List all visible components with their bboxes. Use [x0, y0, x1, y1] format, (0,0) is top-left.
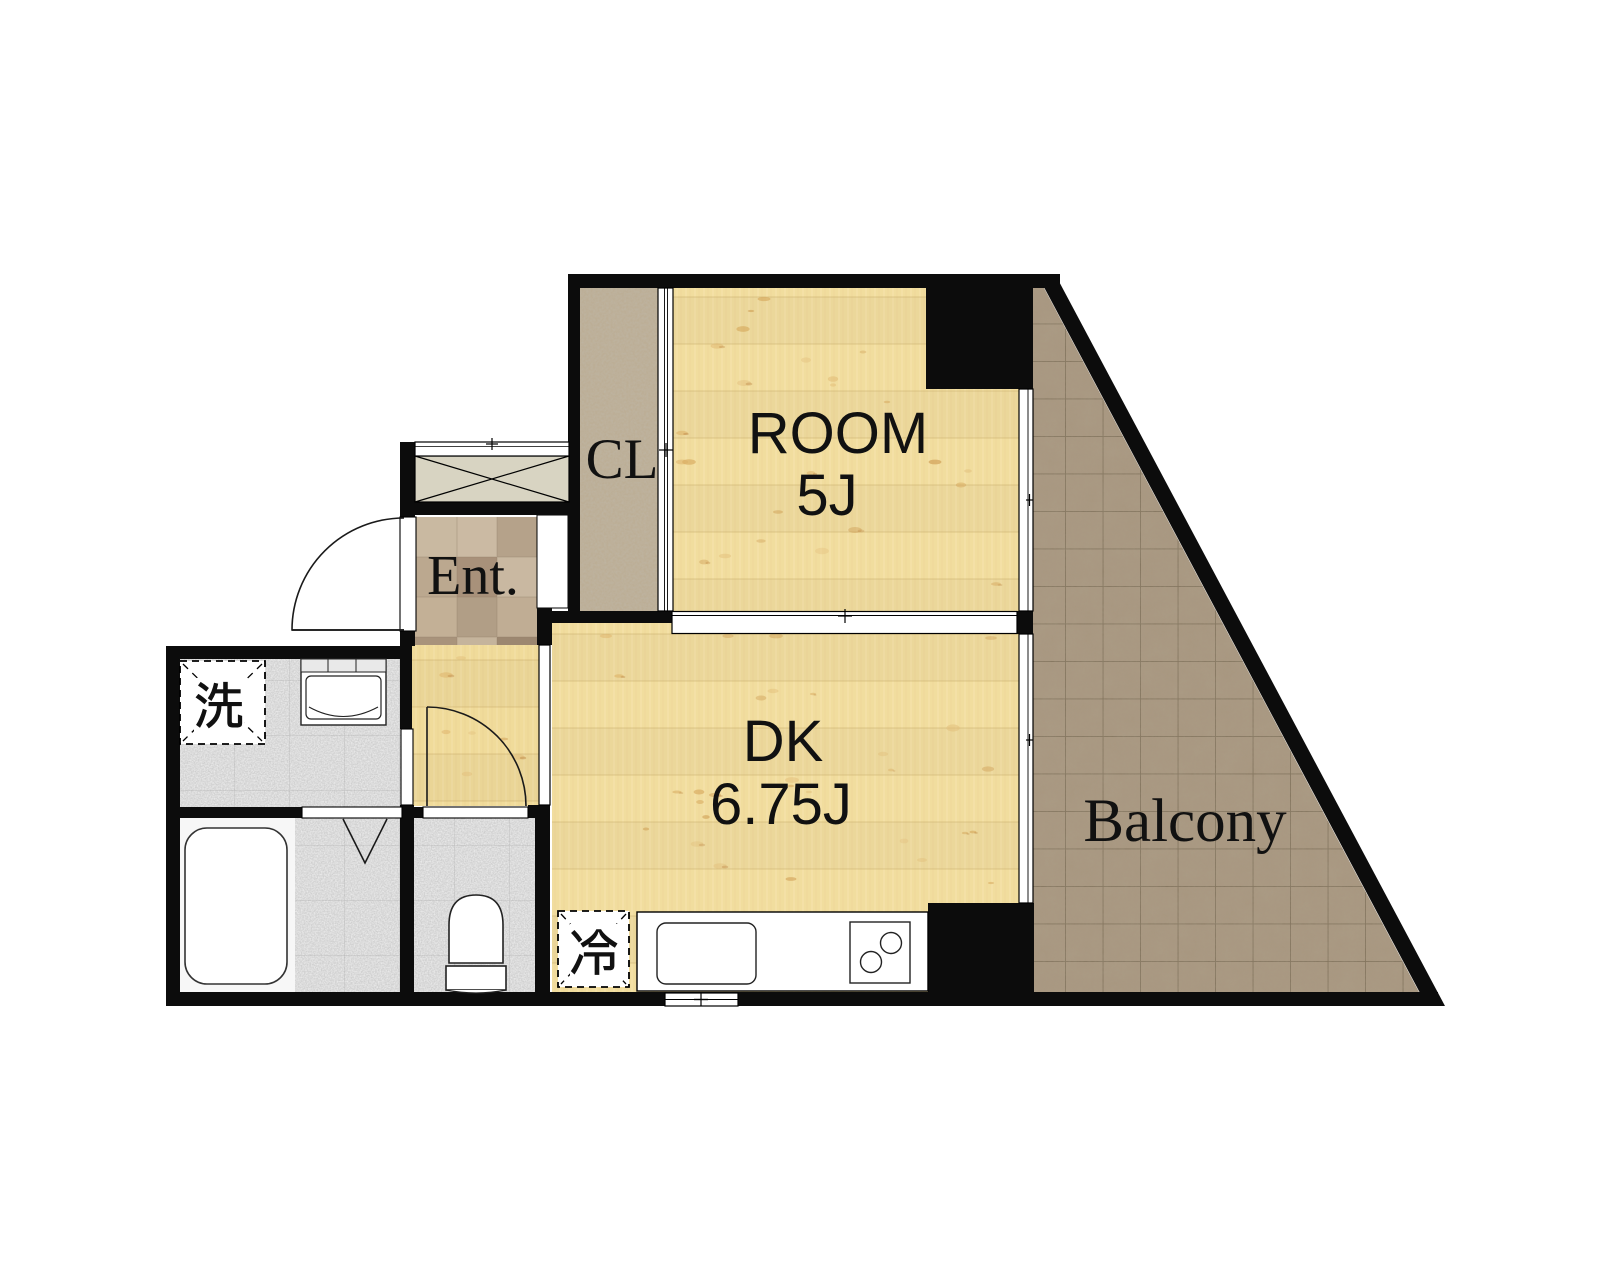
svg-text:ROOM: ROOM [748, 401, 928, 466]
svg-text:Ent.: Ent. [427, 545, 519, 607]
svg-text:Balcony: Balcony [1083, 788, 1287, 855]
svg-text:CL: CL [586, 428, 659, 491]
svg-text:6.75J: 6.75J [710, 772, 852, 837]
svg-text:DK: DK [743, 709, 824, 774]
svg-text:5J: 5J [796, 463, 857, 528]
